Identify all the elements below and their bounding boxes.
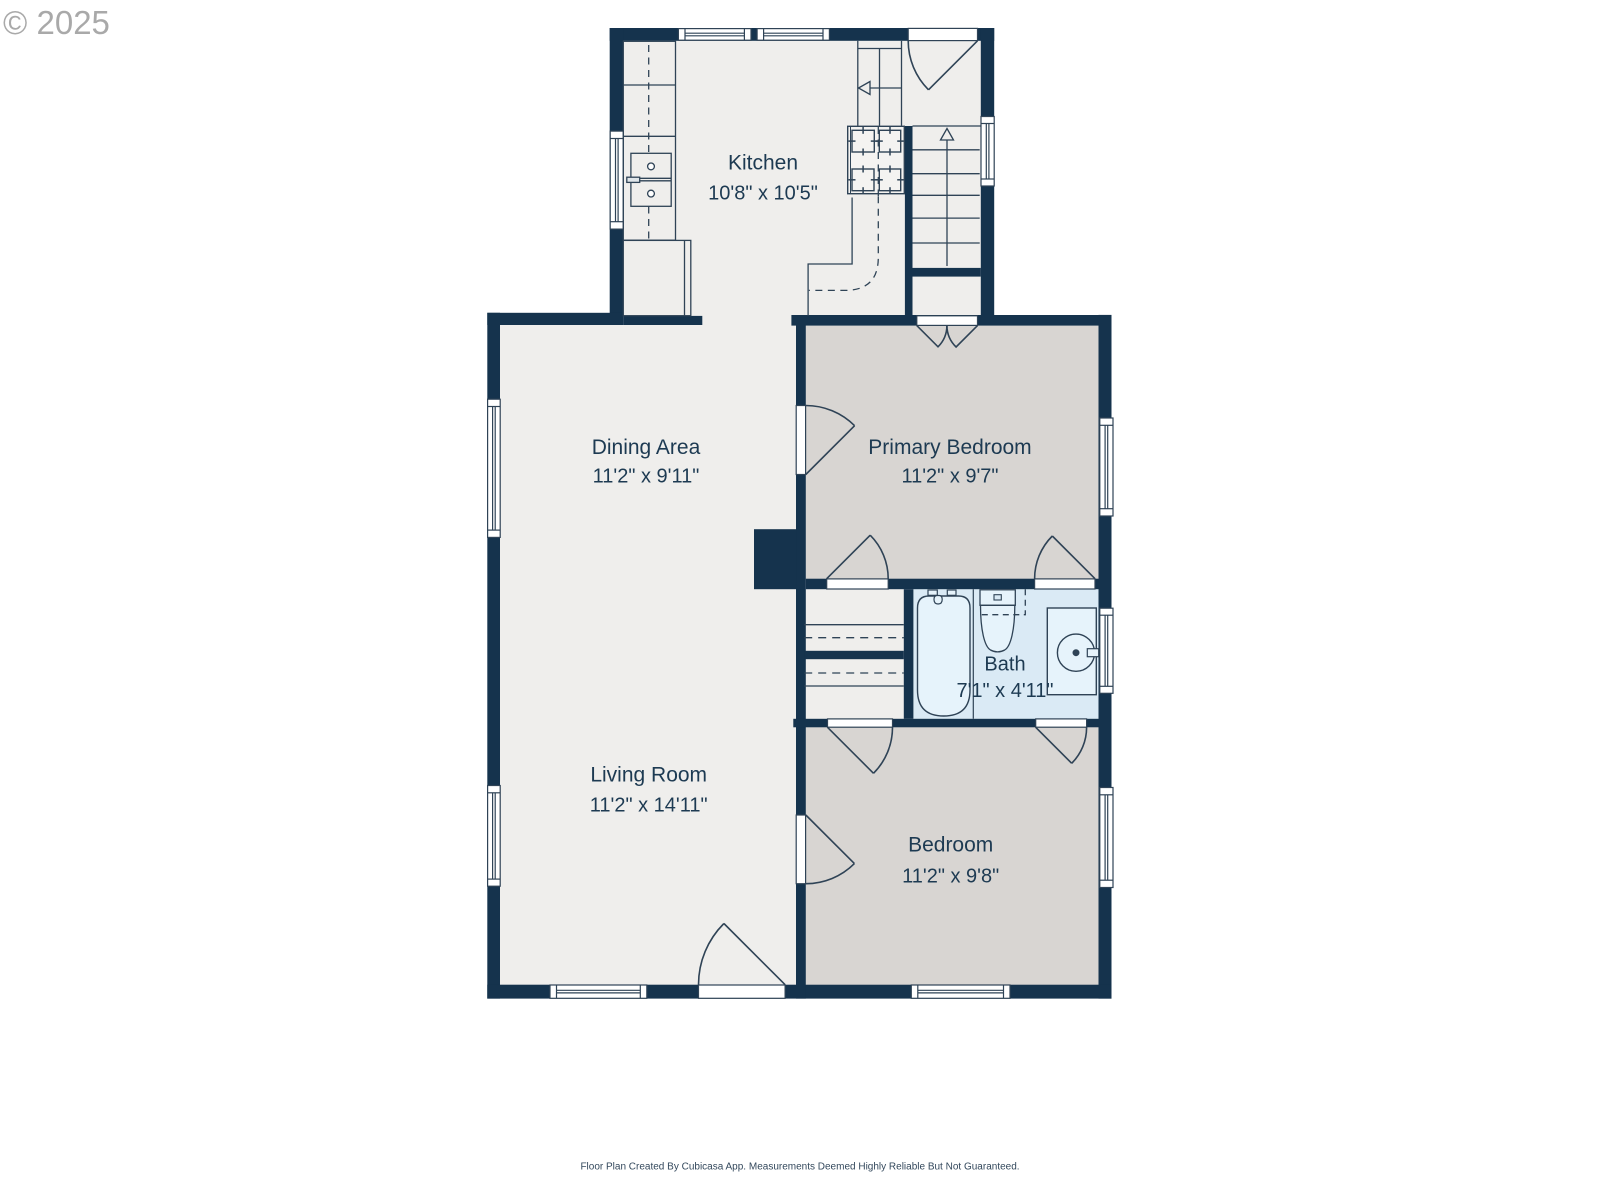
svg-text:Floor Plan Created By Cubicasa: Floor Plan Created By Cubicasa App. Meas… xyxy=(580,1162,1019,1173)
svg-text:Bath: Bath xyxy=(984,654,1025,676)
svg-text:Bedroom: Bedroom xyxy=(908,834,993,857)
svg-text:Living Room: Living Room xyxy=(590,764,707,787)
svg-text:11'2" x 9'7": 11'2" x 9'7" xyxy=(901,466,998,488)
svg-text:7'1" x 4'11": 7'1" x 4'11" xyxy=(956,680,1053,702)
svg-text:Dining Area: Dining Area xyxy=(592,436,701,459)
svg-text:11'2" x 14'11": 11'2" x 14'11" xyxy=(590,795,708,817)
svg-text:10'8" x 10'5": 10'8" x 10'5" xyxy=(708,183,818,205)
svg-text:Kitchen: Kitchen xyxy=(728,152,798,175)
svg-text:11'2" x 9'11": 11'2" x 9'11" xyxy=(593,466,700,488)
svg-text:11'2" x 9'8": 11'2" x 9'8" xyxy=(902,866,999,888)
svg-text:Primary Bedroom: Primary Bedroom xyxy=(868,436,1031,459)
svg-text:© 2025: © 2025 xyxy=(3,4,110,41)
